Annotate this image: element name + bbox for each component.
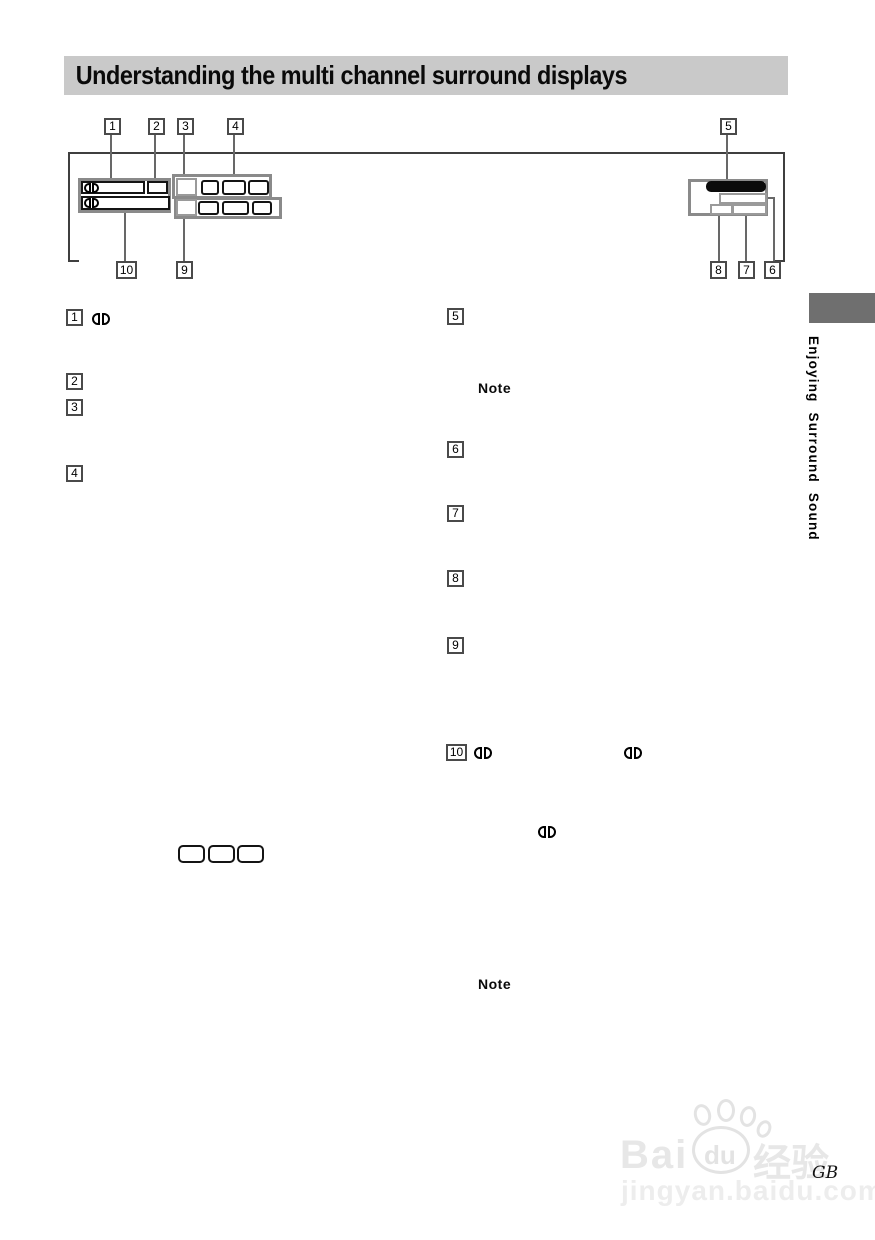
- speaker-indicator-box: [237, 845, 264, 863]
- item-5-marker: 5: [447, 308, 464, 325]
- item-1-marker: 1: [66, 309, 83, 326]
- dolby-digital-icon: [624, 747, 642, 759]
- dolby-digital-icon: [538, 826, 556, 838]
- callout-10: 10: [116, 261, 137, 279]
- channel-cell: [252, 201, 272, 215]
- channel-cell: [201, 180, 219, 195]
- baidu-watermark-text: Bai: [620, 1133, 688, 1178]
- callout-8: 8: [710, 261, 727, 279]
- panel-bottom-left-stub: [68, 260, 79, 262]
- channel-cell: [198, 201, 219, 215]
- callout-3: 3: [177, 118, 194, 135]
- item-6-marker: 6: [447, 441, 464, 458]
- callout-line-5: [726, 135, 728, 182]
- callout-line-10: [124, 212, 126, 261]
- callout-1: 1: [104, 118, 121, 135]
- callout-5: 5: [720, 118, 737, 135]
- baidu-watermark-text: du: [704, 1140, 736, 1171]
- item-2-marker: 2: [66, 373, 83, 390]
- speaker-indicator-box: [208, 845, 235, 863]
- chapter-tab: [809, 293, 875, 323]
- callout-7: 7: [738, 261, 755, 279]
- sound-field-sub-display: [719, 193, 767, 204]
- channel-cell-top-left: [176, 178, 197, 196]
- indicator-row-1-subcell: [147, 181, 168, 194]
- item-4-marker: 4: [66, 465, 83, 482]
- dolby-digital-icon: [84, 183, 99, 193]
- callout-6: 6: [764, 261, 781, 279]
- speaker-indicator-box: [178, 845, 205, 863]
- dolby-digital-icon: [84, 198, 99, 208]
- paw-icon: [738, 1105, 758, 1129]
- dolby-digital-icon: [474, 747, 492, 759]
- page-code: GB: [812, 1163, 838, 1183]
- callout-line-6: [773, 197, 775, 261]
- callout-line-8: [718, 215, 720, 261]
- callout-4: 4: [227, 118, 244, 135]
- item-3-marker: 3: [66, 399, 83, 416]
- paw-icon: [691, 1102, 713, 1128]
- sound-field-name-display: [706, 181, 766, 192]
- callout-2: 2: [148, 118, 165, 135]
- paw-icon: [717, 1099, 735, 1122]
- callout-line-2: [154, 135, 156, 181]
- sound-field-cell-right: [732, 204, 767, 215]
- callout-line-1: [110, 135, 112, 182]
- note-label-1: Note: [478, 380, 511, 396]
- chapter-title-vertical: Enjoying Surround Sound: [806, 336, 821, 576]
- page-title: Understanding the multi channel surround…: [64, 56, 716, 95]
- channel-cell-bottom-left: [176, 199, 197, 216]
- title-bar: Understanding the multi channel surround…: [64, 56, 788, 95]
- note-label-2: Note: [478, 976, 511, 992]
- sound-field-cell-left: [710, 204, 733, 215]
- dolby-digital-icon: [92, 313, 110, 325]
- callout-9: 9: [176, 261, 193, 279]
- callout-line-7: [745, 215, 747, 261]
- manual-page: Understanding the multi channel surround…: [0, 0, 875, 1240]
- channel-cell: [222, 180, 246, 195]
- item-8-marker: 8: [447, 570, 464, 587]
- item-10-marker: 10: [446, 744, 467, 761]
- channel-cell: [222, 201, 249, 215]
- callout-line-3: [183, 135, 185, 178]
- channel-cell: [248, 180, 269, 195]
- item-7-marker: 7: [447, 505, 464, 522]
- callout-line-9: [183, 218, 185, 261]
- item-9-marker: 9: [447, 637, 464, 654]
